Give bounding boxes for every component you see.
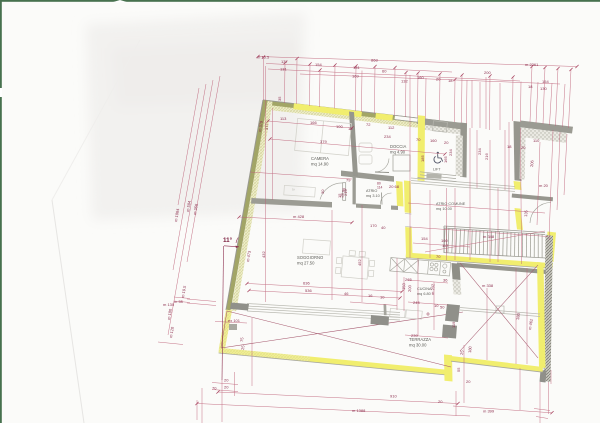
svg-text:245: 245 (413, 300, 420, 305)
svg-text:m 1388: m 1388 (352, 408, 366, 413)
svg-text:15: 15 (337, 193, 342, 198)
svg-text:60: 60 (382, 69, 387, 74)
svg-text:18: 18 (528, 84, 533, 89)
svg-text:m 348: m 348 (483, 234, 495, 239)
svg-text:166: 166 (310, 120, 317, 125)
svg-text:239: 239 (411, 333, 418, 338)
svg-text:169: 169 (352, 74, 359, 79)
svg-text:18: 18 (507, 144, 512, 149)
svg-text:m 55: m 55 (174, 299, 184, 304)
svg-text:10: 10 (434, 303, 439, 308)
svg-text:135: 135 (523, 209, 529, 217)
svg-text:216: 216 (484, 153, 489, 160)
svg-text:m 428: m 428 (293, 214, 305, 219)
svg-text:20: 20 (466, 379, 471, 384)
svg-text:ex 101: ex 101 (228, 318, 241, 323)
svg-text:137: 137 (281, 59, 288, 64)
svg-text:11°: 11° (223, 236, 233, 244)
svg-text:113: 113 (280, 116, 287, 121)
svg-text:154: 154 (542, 79, 549, 84)
svg-text:377: 377 (264, 123, 269, 130)
svg-text:30: 30 (320, 189, 325, 194)
svg-text:234: 234 (477, 148, 482, 155)
svg-text:15: 15 (348, 126, 353, 131)
svg-text:432: 432 (261, 251, 266, 258)
svg-text:70: 70 (436, 254, 441, 259)
svg-text:70: 70 (212, 386, 217, 391)
svg-text:132: 132 (401, 79, 408, 84)
svg-text:16: 16 (368, 293, 373, 298)
svg-text:160: 160 (430, 138, 437, 143)
svg-text:72: 72 (366, 122, 371, 127)
svg-text:206: 206 (529, 159, 535, 167)
svg-text:100: 100 (336, 124, 343, 129)
svg-text:40: 40 (381, 225, 386, 230)
svg-text:868: 868 (371, 58, 378, 63)
svg-text:36: 36 (443, 278, 448, 283)
svg-text:10: 10 (380, 295, 385, 300)
svg-text:18: 18 (448, 78, 453, 83)
svg-text:50: 50 (440, 305, 445, 310)
svg-text:m 399: m 399 (483, 409, 495, 414)
svg-text:m 202: m 202 (430, 283, 435, 295)
svg-text:200: 200 (407, 284, 412, 292)
svg-text:35: 35 (277, 96, 282, 101)
svg-text:536: 536 (305, 288, 312, 293)
svg-text:DOCCIA: DOCCIA (390, 144, 406, 149)
svg-text:20: 20 (444, 140, 449, 145)
svg-text:20 68: 20 68 (389, 184, 400, 189)
svg-text:150: 150 (401, 282, 406, 290)
svg-text:452: 452 (357, 259, 362, 266)
svg-text:154: 154 (421, 236, 428, 241)
svg-text:234: 234 (384, 134, 391, 139)
svg-text:mq 3.10: mq 3.10 (366, 194, 380, 198)
svg-text:910: 910 (390, 394, 397, 399)
svg-text:234: 234 (448, 149, 453, 156)
svg-text:m 20: m 20 (539, 183, 549, 188)
svg-text:185: 185 (420, 155, 425, 162)
svg-text:119: 119 (451, 321, 456, 328)
svg-text:110: 110 (533, 138, 540, 143)
svg-text:m 16.5: m 16.5 (257, 55, 270, 60)
svg-text:170: 170 (370, 223, 377, 228)
svg-text:379: 379 (320, 139, 327, 144)
svg-text:131: 131 (280, 67, 287, 72)
svg-text:mq 14.90: mq 14.90 (311, 162, 329, 167)
svg-text:154: 154 (315, 62, 322, 67)
svg-text:20: 20 (224, 385, 229, 390)
svg-text:130: 130 (540, 86, 547, 91)
svg-text:180: 180 (467, 345, 473, 353)
svg-text:mq 10.00: mq 10.00 (436, 207, 452, 211)
svg-text:70: 70 (416, 137, 421, 142)
svg-text:ATRIO: ATRIO (366, 189, 377, 193)
svg-text:265: 265 (405, 277, 412, 282)
svg-text:55: 55 (456, 367, 461, 372)
svg-text:m 338: m 338 (482, 283, 494, 288)
svg-text:CAMERA: CAMERA (311, 156, 329, 161)
svg-text:m 2261: m 2261 (525, 62, 539, 67)
svg-text:mq 6.80: mq 6.80 (417, 292, 431, 296)
svg-text:20: 20 (224, 378, 229, 383)
svg-text:117: 117 (442, 243, 449, 248)
svg-text:160: 160 (417, 75, 424, 80)
svg-text:114: 114 (377, 186, 383, 190)
svg-text:LIFT: LIFT (433, 168, 441, 172)
svg-text:79: 79 (346, 178, 351, 183)
svg-text:20: 20 (436, 77, 441, 82)
svg-text:20: 20 (438, 399, 443, 404)
svg-text:46: 46 (344, 291, 349, 296)
svg-text:mq 30.00: mq 30.00 (409, 343, 427, 348)
svg-text:20: 20 (521, 145, 526, 150)
svg-text:200: 200 (484, 70, 491, 75)
svg-text:636: 636 (303, 281, 310, 286)
svg-text:SOGGIORNO: SOGGIORNO (297, 255, 324, 260)
svg-text:112: 112 (388, 125, 395, 130)
svg-text:181: 181 (353, 65, 360, 70)
svg-text:mq 27.50: mq 27.50 (297, 261, 315, 266)
